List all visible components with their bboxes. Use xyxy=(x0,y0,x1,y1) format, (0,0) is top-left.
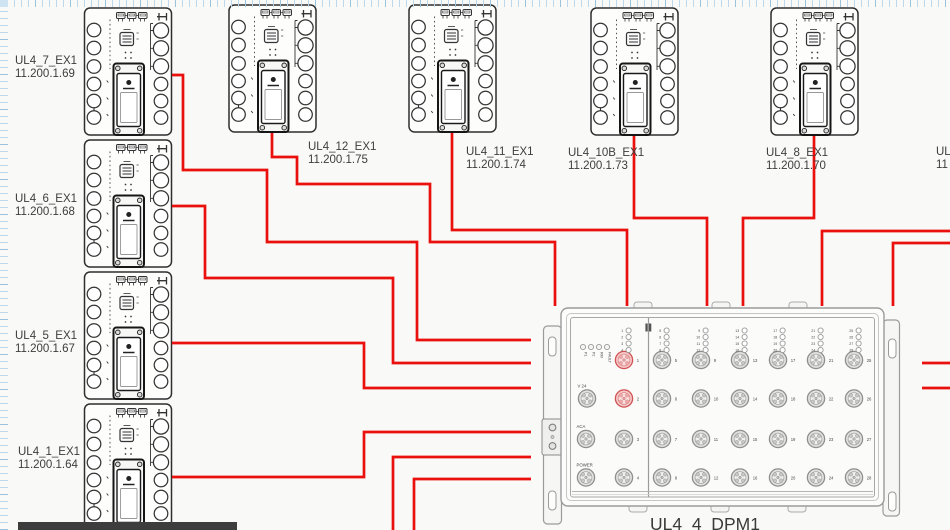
device-name: UL4_8_EX1 xyxy=(766,147,828,160)
dpm-led-number: 1 xyxy=(621,329,623,333)
device-ul4_5_ex1[interactable] xyxy=(85,272,172,399)
device-label-ul4_5_ex1: UL4_5_EX111.200.1.67 xyxy=(15,330,77,356)
dpm-led-number: 16 xyxy=(735,348,739,352)
device-label-ul4_10b_ex1: UL4_10B_EX111.200.1.73 xyxy=(568,147,644,173)
cable-ul4-10b-to-dpm[interactable] xyxy=(634,136,707,306)
dpm-led xyxy=(742,328,747,333)
device-ul4_10b_ex1[interactable] xyxy=(591,8,678,135)
dpm-port-number: 19 xyxy=(791,437,796,442)
device-name: UL4_12_EX1 xyxy=(308,141,376,154)
dpm-port-20[interactable] xyxy=(769,469,786,486)
grid-ruler-top xyxy=(0,0,950,7)
offscreen-device-name: UL xyxy=(936,146,950,159)
dpm-enclosure xyxy=(542,302,900,524)
device-label-ul4_1_ex1: UL4_1_EX111.200.1.64 xyxy=(18,446,80,472)
device-name: UL4_6_EX1 xyxy=(15,193,77,206)
dpm-port-13[interactable] xyxy=(731,351,748,368)
dpm-port-16[interactable] xyxy=(731,469,748,486)
dpm-port-5[interactable] xyxy=(653,351,670,368)
dpm-port-number: 10 xyxy=(714,396,719,401)
dpm-led xyxy=(780,341,785,346)
dpm-port-number: 16 xyxy=(753,475,758,480)
dpm-led-number: 21 xyxy=(811,329,815,333)
dpm-led-number: 5 xyxy=(659,329,661,333)
dpm-led-number: 12 xyxy=(696,348,700,352)
dpm-led-number: 9 xyxy=(698,329,700,333)
dpm-aux-port-power[interactable]: POWER xyxy=(577,463,595,487)
dpm-aux-port-label: V 24 xyxy=(578,384,587,389)
device-ul4_8_ex1[interactable] xyxy=(771,8,858,135)
grid-ruler-corner xyxy=(0,0,8,7)
dpm-led xyxy=(626,334,631,339)
dpm-led-number: 27 xyxy=(849,342,853,346)
dpm-port-4[interactable] xyxy=(615,469,632,486)
dpm-port-24[interactable] xyxy=(807,469,824,486)
dpm-title-label: UL4_4_DPM1 xyxy=(650,514,760,530)
dpm-led xyxy=(626,328,631,333)
dpm-port-6[interactable] xyxy=(653,390,670,407)
dpm-led xyxy=(742,341,747,346)
dpm-port-28[interactable] xyxy=(845,469,862,486)
dpm-led-number: 22 xyxy=(811,335,815,339)
dpm-led xyxy=(780,347,785,352)
device-ul4_11_ex1[interactable] xyxy=(409,5,496,132)
dpm-port-10[interactable] xyxy=(692,390,709,407)
dpm-led-number: 8 xyxy=(659,348,661,352)
dpm-led-number: 4 xyxy=(621,348,623,352)
dpm-port-17[interactable] xyxy=(769,351,786,368)
dpm-led-number: 26 xyxy=(849,335,853,339)
taskbar-edge xyxy=(18,522,237,530)
dpm-led xyxy=(703,341,708,346)
device-ul4_12_ex1[interactable] xyxy=(229,5,316,132)
dpm-led xyxy=(626,341,631,346)
dpm-port-number: 21 xyxy=(829,358,834,363)
dpm-led-number: 15 xyxy=(735,342,739,346)
dpm-led-number: 11 xyxy=(697,342,701,346)
dpm-port-2[interactable] xyxy=(615,390,632,407)
dpm-port-number: 18 xyxy=(791,396,796,401)
dpm-port-number: 11 xyxy=(714,437,719,442)
device-ip: 11.200.1.68 xyxy=(15,206,77,219)
dpm-port-26[interactable] xyxy=(845,390,862,407)
device-label-ul4_7_ex1: UL4_7_EX111.200.1.69 xyxy=(15,55,77,81)
device-label-ul4_12_ex1: UL4_12_EX111.200.1.75 xyxy=(308,141,376,167)
dpm-port-3[interactable] xyxy=(615,430,632,447)
cable-ul4-1-to-dpm[interactable] xyxy=(172,432,531,477)
offscreen-device-ip: 11 xyxy=(936,159,950,172)
device-name: UL4_11_EX1 xyxy=(466,146,534,159)
dpm-status-led-label: P1 xyxy=(583,352,587,356)
dpm-led xyxy=(856,341,861,346)
dpm-led xyxy=(664,328,669,333)
dpm-status-led-label: P2 xyxy=(591,352,595,356)
dpm-status-led-label: RM xyxy=(599,352,603,358)
dpm-led xyxy=(856,328,861,333)
cable-ul4-5-to-dpm[interactable] xyxy=(172,343,531,388)
dpm-port-9[interactable] xyxy=(692,351,709,368)
device-ip: 11.200.1.70 xyxy=(766,160,828,173)
dpm-port-number: 14 xyxy=(753,396,758,401)
dpm-port-12[interactable] xyxy=(692,469,709,486)
dpm-status-led-rm xyxy=(596,344,601,349)
dpm-port-21[interactable] xyxy=(807,351,824,368)
dpm-led-number: 2 xyxy=(621,335,623,339)
dpm-led-number: 28 xyxy=(849,348,853,352)
device-label-ul4_6_ex1: UL4_6_EX111.200.1.68 xyxy=(15,193,77,219)
dpm-port-22[interactable] xyxy=(807,390,824,407)
device-ip: 11.200.1.69 xyxy=(15,68,77,81)
dpm-port-14[interactable] xyxy=(731,390,748,407)
dpm-port-15[interactable] xyxy=(731,430,748,447)
dpm-port-number: 22 xyxy=(829,396,834,401)
device-ip: 11.200.1.64 xyxy=(18,459,80,472)
dpm-status-led-p1 xyxy=(580,344,585,349)
dpm-port-8[interactable] xyxy=(653,469,670,486)
dpm-status-led-label: FAULT xyxy=(607,352,611,364)
dpm-port-7[interactable] xyxy=(653,430,670,447)
dpm-port-11[interactable] xyxy=(692,430,709,447)
device-ul4_7_ex1[interactable] xyxy=(85,8,172,135)
dpm-port-18[interactable] xyxy=(769,390,786,407)
dpm-led-number: 10 xyxy=(696,335,700,339)
dpm-port-25[interactable] xyxy=(845,351,862,368)
dpm-port-number: 28 xyxy=(867,475,872,480)
dpm-port-number: 23 xyxy=(829,437,834,442)
dpm-port-number: 12 xyxy=(714,475,719,480)
dpm-led xyxy=(818,341,823,346)
dpm-led xyxy=(818,347,823,352)
device-ip: 11.200.1.73 xyxy=(568,160,644,173)
grid-ruler-left xyxy=(0,0,8,530)
device-ul4_1_ex1[interactable] xyxy=(85,404,172,530)
dpm-led-number: 13 xyxy=(735,329,739,333)
dpm-port-number: 17 xyxy=(791,358,796,363)
dpm-port-number: 13 xyxy=(753,358,758,363)
device-name: UL4_10B_EX1 xyxy=(568,147,644,160)
dpm-led-number: 20 xyxy=(773,348,777,352)
device-label-ul4_11_ex1: UL4_11_EX111.200.1.74 xyxy=(466,146,534,172)
dpm-port-23[interactable] xyxy=(807,430,824,447)
dpm-led-number: 23 xyxy=(811,342,815,346)
dpm-port-number: 26 xyxy=(867,396,872,401)
dpm-aux-port-label: ACA xyxy=(577,424,586,429)
dpm-port-number: 27 xyxy=(867,437,872,442)
dpm-led-number: 25 xyxy=(849,329,853,333)
dpm-port-number: 24 xyxy=(829,475,834,480)
device-name: UL4_7_EX1 xyxy=(15,55,77,68)
dpm-led-number: 6 xyxy=(659,335,661,339)
dpm-led xyxy=(703,334,708,339)
dpm-led-number: 14 xyxy=(735,335,739,339)
device-label-ul4_8_ex1: UL4_8_EX111.200.1.70 xyxy=(766,147,828,173)
offscreen-device-label: UL 11 xyxy=(936,146,950,172)
dpm-port-number: 25 xyxy=(867,358,872,363)
cable-offscreen-right-2[interactable] xyxy=(893,243,950,306)
device-name: UL4_5_EX1 xyxy=(15,330,77,343)
dpm-led xyxy=(780,328,785,333)
dpm-led-number: 7 xyxy=(659,342,661,346)
dpm-unit[interactable]: 1122334455667788991010111112121313141415… xyxy=(542,302,900,524)
dpm-led xyxy=(703,347,708,352)
device-ip: 11.200.1.67 xyxy=(15,343,77,356)
dpm-led xyxy=(626,347,631,352)
dpm-led xyxy=(856,334,861,339)
dpm-led xyxy=(856,347,861,352)
cable-offscreen-bottom-2[interactable] xyxy=(414,479,531,530)
dpm-status-led-fault xyxy=(604,344,609,349)
device-name: UL4_1_EX1 xyxy=(18,446,80,459)
dpm-aux-port-label: POWER xyxy=(577,463,593,468)
dpm-led xyxy=(664,334,669,339)
dpm-port-number: 15 xyxy=(753,437,758,442)
dpm-led xyxy=(818,334,823,339)
dpm-led xyxy=(664,347,669,352)
device-ip: 11.200.1.75 xyxy=(308,154,376,167)
dpm-led xyxy=(664,341,669,346)
dpm-led xyxy=(742,334,747,339)
dpm-port-19[interactable] xyxy=(769,430,786,447)
device-ul4_6_ex1[interactable] xyxy=(85,140,172,267)
diagram-canvas[interactable]: 1122334455667788991010111112121313141415… xyxy=(0,0,950,530)
dpm-led-number: 18 xyxy=(773,335,777,339)
dpm-led xyxy=(742,347,747,352)
dpm-port-number: 20 xyxy=(791,475,796,480)
dpm-status-led-p2 xyxy=(588,344,593,349)
dpm-led xyxy=(780,334,785,339)
dpm-led xyxy=(703,328,708,333)
dpm-port-27[interactable] xyxy=(845,430,862,447)
dpm-led xyxy=(818,328,823,333)
dpm-led-number: 19 xyxy=(773,342,777,346)
dpm-led-number: 17 xyxy=(773,329,777,333)
device-ip: 11.200.1.74 xyxy=(466,159,534,172)
dpm-port-1[interactable] xyxy=(615,351,632,368)
dpm-led-number: 24 xyxy=(811,348,815,352)
dpm-led-number: 3 xyxy=(621,342,623,346)
